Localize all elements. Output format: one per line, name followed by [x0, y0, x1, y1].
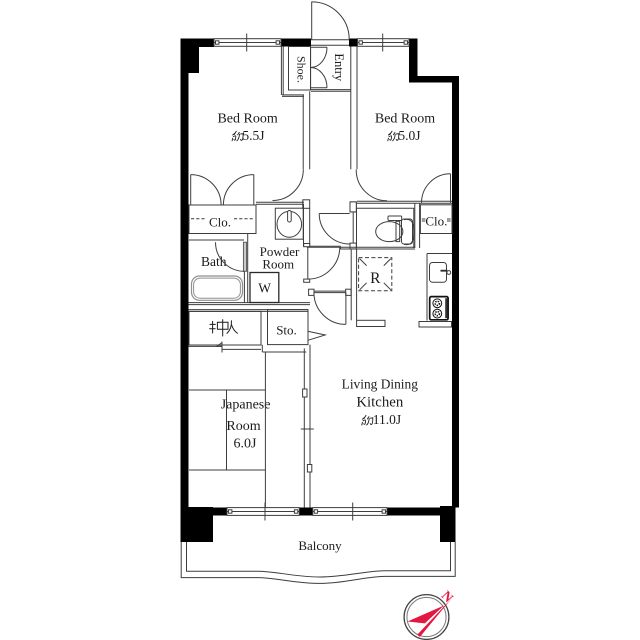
- svg-text:Clo.: Clo.: [425, 214, 447, 229]
- svg-text:Room: Room: [262, 257, 294, 272]
- svg-text:Sto.: Sto.: [276, 322, 297, 337]
- svg-text:Balcony: Balcony: [298, 538, 342, 553]
- svg-text:Kitchen: Kitchen: [356, 395, 403, 411]
- svg-text:Shoe.: Shoe.: [295, 56, 309, 83]
- svg-text:Living Dining: Living Dining: [342, 377, 419, 392]
- svg-text:6.0J: 6.0J: [234, 437, 258, 452]
- svg-text:Japanese: Japanese: [221, 398, 271, 413]
- svg-text:Entry: Entry: [332, 53, 346, 82]
- svg-text:5.0J: 5.0J: [398, 128, 420, 143]
- svg-text:5.5J: 5.5J: [242, 128, 264, 143]
- svg-text:Bed Room: Bed Room: [375, 111, 435, 126]
- svg-text:Room: Room: [226, 419, 260, 434]
- svg-text:Clo.: Clo.: [209, 214, 231, 229]
- svg-text:Bed Room: Bed Room: [217, 111, 277, 126]
- svg-text:11.0J: 11.0J: [373, 412, 401, 427]
- svg-text:W: W: [258, 280, 271, 295]
- svg-text:R: R: [370, 270, 381, 287]
